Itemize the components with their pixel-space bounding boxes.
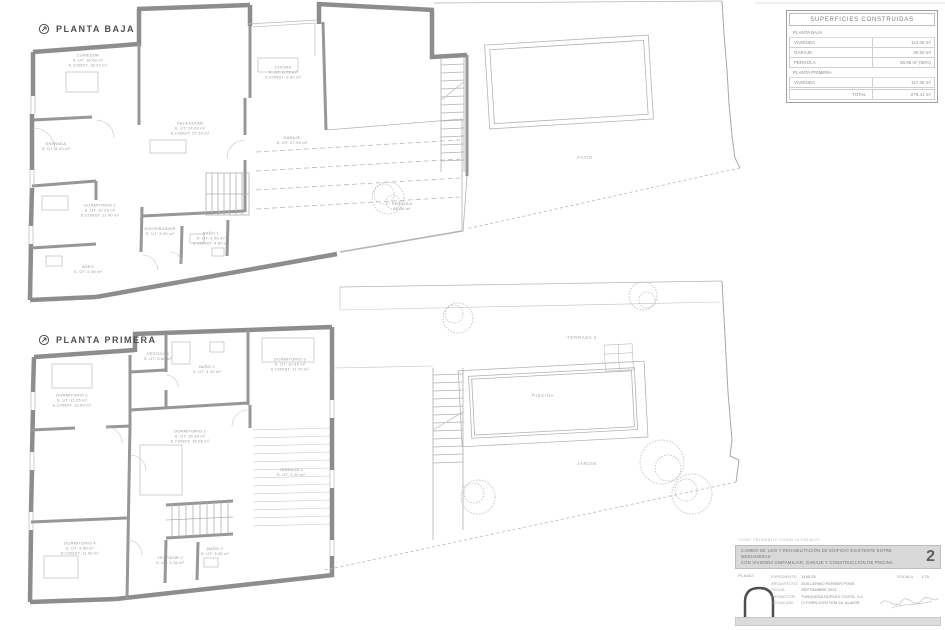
room-label: BAÑO 2 S. ÚT: 4.10 m² [193, 364, 221, 374]
scale-label: ESCALA [897, 574, 913, 579]
surface-row-value: 279.41 m² [872, 90, 934, 99]
surface-row-label: PLANTA PRIMERA [789, 70, 874, 75]
room-label: DORMITORIO 2 S. ÚT: 11.25 m² S.CONST: 12… [53, 393, 92, 408]
field-label: ARQUITECTO: [771, 581, 801, 586]
surface-row-value: 113.05 m² [872, 38, 934, 47]
surfaces-table-title: SUPERFICIES CONSTRUIDAS [789, 13, 935, 26]
field-label: FECHA: [771, 587, 801, 592]
room-label: PÉRGOLA 36.96 m² [392, 201, 413, 211]
field-value: TURQUESA DUPLEX COSTA, S.L. [801, 594, 864, 599]
project-title-bar: CAMBIO DE USO Y REHABILITACIÓN DE EDIFIC… [735, 545, 941, 569]
room-label: DORMITORIO 4 S. ÚT: 9.85 m² S.CONST: 11.… [61, 541, 99, 556]
field-label: PROMOTOR: [771, 594, 801, 599]
room-label: SALA ESTAR S. ÚT: 24.60 m² S.CONST: 27.1… [171, 121, 210, 136]
surface-table-body: PLANTA BAJAVIVIENDA113.05 m²GARAJE30.50 … [789, 28, 935, 100]
field-label: EXPEDIENTE: [771, 574, 801, 579]
field-value: GUILLERMO FERRER PONS [801, 581, 855, 586]
field-value: C/ FORN D'EN TEM 24. ALAIOR [801, 600, 859, 605]
surface-table-row: TOTAL279.41 m² [789, 89, 935, 100]
surface-table-row: PLANTA PRIMERA [789, 68, 935, 78]
room-label: COMEDOR S. ÚT: 16.40 m² S.CONST: 18.20 m… [69, 53, 108, 68]
room-label: BAÑO 3 S. ÚT: 3.95 m² [201, 546, 229, 556]
field-label: SITUACIÓN: [771, 600, 801, 605]
scale-field: ESCALA 1:75 [897, 574, 929, 579]
room-label: TERRAZA 1 S. ÚT: 9.20 m² [277, 467, 305, 477]
title-block: VISAT TELEMÀTIC COAIB 12/09345/21 CAMBIO… [735, 538, 941, 626]
room-label: DISTRIBUIDOR S. ÚT: 3.40 m² [144, 226, 175, 236]
surface-table-row: PLANTA BAJA [789, 28, 935, 38]
drawing-sheet: PLANTA BAJA PLANTA PRIMERA COMEDOR S. ÚT… [0, 0, 945, 630]
surfaces-table: SUPERFICIES CONSTRUIDAS PLANTA BAJAVIVIE… [786, 10, 938, 103]
surface-row-value [874, 28, 935, 37]
titleblock-fields: EXPEDIENTE:1446-05ARQUITECTO:GUILLERMO F… [771, 574, 864, 607]
visa-stamp-text: VISAT TELEMÀTIC COAIB 12/09345/21 [739, 538, 941, 542]
titleblock-field: PROMOTOR:TURQUESA DUPLEX COSTA, S.L. [771, 594, 864, 599]
surface-table-row: PÉRGOLA36.96 m² (50%) [789, 58, 935, 68]
project-title: CAMBIO DE USO Y REHABILITACIÓN DE EDIFIC… [741, 548, 922, 565]
field-value: 1446-05 [801, 574, 816, 579]
room-label: VESTIDOR 2 S. ÚT: 3.15 m² [156, 555, 184, 565]
surface-row-value [874, 68, 935, 77]
scale-value: 1:75 [921, 574, 929, 579]
room-label: ENTRADA S. ÚT: 4.20 m² [42, 141, 70, 151]
surface-row-label: VIVIENDA [790, 80, 872, 85]
titleblock-field: SITUACIÓN:C/ FORN D'EN TEM 24. ALAIOR [771, 600, 864, 605]
room-label: JARDÍN [577, 461, 597, 467]
surface-table-row: VIVIENDA117.38 m² [789, 78, 935, 88]
room-label: DORMITORIO 1 S. ÚT: 16.30 m² S.CONST: 18… [171, 429, 210, 444]
surface-row-value: 117.38 m² [872, 78, 934, 87]
field-value: SEPTIEMBRE 2021 [801, 587, 837, 592]
titleblock-field: ARQUITECTO:GUILLERMO FERRER PONS [771, 581, 864, 586]
project-title-line2: CON VIVIENDA UNIFAMILIAR, GARAJE Y CONST… [741, 560, 922, 566]
room-label: DORMITORIO 3 S. ÚT: 10.45 m² S.CONST: 11… [271, 357, 309, 372]
room-label: ASEO S. ÚT: 2.45 m² [74, 264, 102, 274]
room-label: GARAJE S. ÚT: 27.90 m² [277, 135, 308, 145]
titleblock-field: FECHA:SEPTIEMBRE 2021 [771, 587, 864, 592]
room-label: PISCINA [532, 393, 554, 399]
surface-row-label: GARAJE [790, 50, 872, 55]
room-label: VESTIDOR S. ÚT: 3.60 m² [144, 351, 172, 361]
room-label: DORMITORIO 1 S. ÚT: 10.25 m² S.CONST: 11… [81, 203, 119, 218]
surface-row-value: 36.96 m² (50%) [872, 58, 934, 67]
room-label: BAÑO 1 S. ÚT: 4.05 m² S.CONST: 4.60 m² [193, 231, 229, 246]
titleblock-fields-area: PLANO: EXPEDIENTE:1446-05ARQUITECTO:GUIL… [735, 569, 941, 617]
surface-row-label: PLANTA BAJA [789, 30, 874, 35]
surface-table-row: GARAJE30.50 m² [789, 48, 935, 58]
surface-row-label: VIVIENDA [790, 40, 872, 45]
plano-label: PLANO: [738, 573, 755, 578]
surface-row-value: 30.50 m² [872, 48, 934, 57]
titleblock-field: EXPEDIENTE:1446-05 [771, 574, 864, 579]
titleblock-footer-bar [735, 617, 941, 626]
surface-row-label: TOTAL [790, 92, 872, 97]
room-label: PATIO [577, 155, 593, 161]
surface-row-label: PÉRGOLA [790, 60, 872, 65]
sheet-number: 2 [926, 548, 935, 566]
surface-table-row: VIVIENDA113.05 m² [789, 38, 935, 48]
project-title-line1: CAMBIO DE USO Y REHABILITACIÓN DE EDIFIC… [741, 548, 922, 559]
room-label: TERRAZA 2 [567, 335, 597, 341]
room-label: COCINA S. ÚT: 8.75 m² S.CONST: 9.90 m² [265, 65, 301, 80]
